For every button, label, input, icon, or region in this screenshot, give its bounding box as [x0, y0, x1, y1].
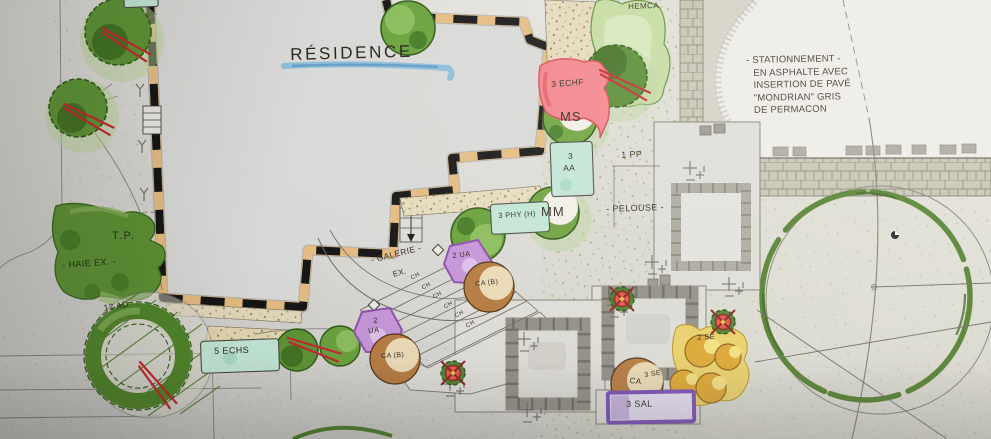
patio-square-c — [676, 188, 746, 266]
patio-square-a — [512, 324, 584, 404]
landscape-plan-photo: RÉSIDENCE - STATIONNEMENT - EN ASPHALTE … — [0, 0, 991, 439]
plant-label-se-upper: 2 SE — [697, 333, 715, 342]
window-symbol — [143, 106, 161, 134]
plant-label-aa: AA — [563, 164, 575, 173]
plant-label-echf: 3 ECHF — [551, 78, 584, 89]
plant-label-ms: MS — [560, 110, 582, 123]
plant-label-aa-qty: 3 — [568, 152, 573, 161]
parking-note-line: INSERTION DE PAVÉ — [746, 78, 851, 92]
parking-note-line: - STATIONNEMENT - — [746, 53, 851, 67]
parking-note-line: "MONDRIAN" GRIS — [747, 91, 852, 105]
plant-label-echs: 5 ECHS — [214, 346, 249, 356]
plant-label-ua-upper: 2 UA — [452, 250, 471, 259]
plant-label-pp: 1 PP — [621, 150, 643, 160]
parking-note-line: DE PERMACON — [747, 103, 852, 117]
area-label-tp: T.P. — [112, 231, 136, 242]
plant-label-mm: MM — [541, 205, 565, 218]
plant-label-ua-lower: UA — [368, 326, 380, 334]
plant-label-ua-lower-qty: 2 — [373, 317, 378, 325]
plant-label-ca-right: CA — [629, 377, 642, 386]
plant-label-ca-lower: CA (B) — [381, 352, 404, 360]
plant-label-sal: 3 SAL — [626, 400, 653, 409]
parking-note: - STATIONNEMENT - EN ASPHALTE AVEC INSER… — [746, 53, 851, 117]
survey-point-icon — [891, 231, 899, 239]
residence-title: RÉSIDENCE — [290, 43, 413, 63]
plant-label-hemca: HEMCA — [628, 2, 659, 11]
plant-label-phy: 3 PHY (H) — [498, 210, 536, 219]
